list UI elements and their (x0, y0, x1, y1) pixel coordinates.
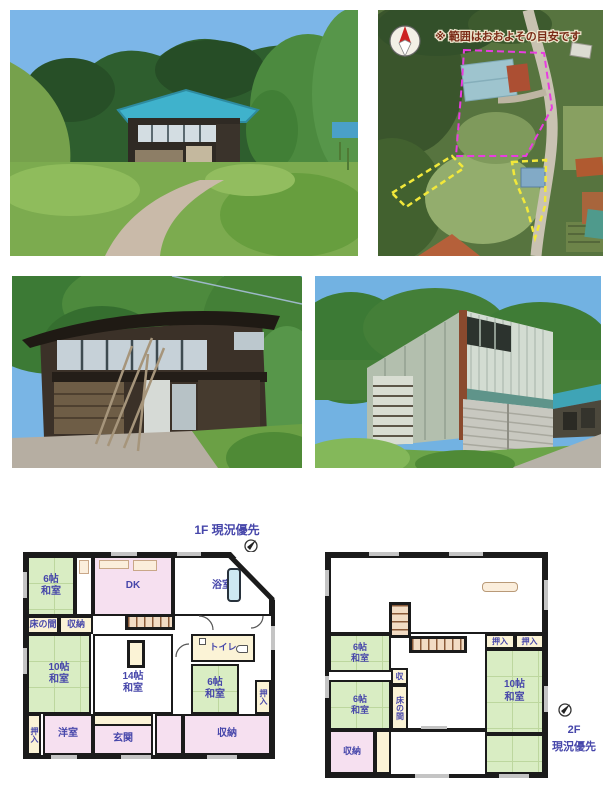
floorplan-1f: 6帖 和室 DK 浴室 床の間 収納 10帖 和室 14帖 和室 トイレ (23, 552, 275, 759)
closet-box-1f (127, 640, 145, 668)
room-1f-entrance: 玄関 (93, 724, 153, 755)
room-1f-washitsu6-e: 6帖 和室 (191, 664, 239, 714)
room-1f-toilet: トイレ (191, 634, 255, 662)
photo-warehouse (315, 276, 601, 468)
map-blue-shed (521, 168, 545, 187)
stairs-2f-upper (389, 602, 411, 638)
room-1f-passage-nw (75, 556, 93, 616)
floor1-title: 1F 現況優先 (172, 521, 282, 539)
sink-icon (199, 638, 206, 645)
room-2f-storage: 収納 (329, 730, 375, 774)
room-2f-storage-small: 収 (391, 668, 408, 685)
compass-icon (390, 26, 420, 56)
room-2f-oshiire-a: 押入 (485, 634, 515, 649)
room-2f-washitsu6-s: 6帖 和室 (329, 680, 391, 730)
room-2f-open-room (329, 556, 544, 634)
room-1f-oshiire-e: 押入 (255, 680, 271, 714)
kitchen-counter (99, 560, 129, 569)
bathtub (227, 568, 241, 602)
photo1-distant-blue-roof (332, 122, 358, 138)
room-2f-cream-strip (375, 730, 391, 774)
wall-2f-mid (391, 728, 487, 732)
photo-house-closeup (12, 276, 302, 468)
north-indicator-icon-2f (557, 702, 573, 718)
room-2f-washitsu6-n: 6帖 和室 (329, 634, 391, 672)
stairs-1f (125, 614, 175, 630)
room-1f-tokonoma: 床の間 (27, 616, 59, 634)
room-1f-washitsu6-nw: 6帖 和室 (27, 556, 75, 616)
floorplan-2f: 6帖 和室 押入 押入 10帖 和室 収 6帖 和室 床の間 収納 (325, 552, 548, 778)
stairs-2f-run (409, 636, 467, 653)
room-2f-tatami-s (485, 734, 544, 774)
room-1f-washitsu10: 10帖 和室 (27, 634, 91, 714)
aerial-map: ※ 範囲はおおよその目安です (378, 10, 603, 256)
room-1f-entry-side (155, 714, 183, 755)
toilet-icon (236, 645, 248, 653)
kitchen-sink (133, 560, 157, 571)
room-1f-bath: 浴室 (173, 556, 271, 616)
room-2f-oshiire-b: 押入 (515, 634, 544, 649)
room-2f-washitsu10: 10帖 和室 (485, 649, 544, 734)
furniture-counter (482, 582, 518, 592)
flyer-page: ※ 範囲はおおよその目安です (0, 0, 607, 800)
room-1f-western: 洋室 (43, 714, 93, 755)
floor2-title: 2F 現況優先 (543, 722, 605, 755)
room-1f-dk: DK (93, 556, 173, 616)
room-1f-oshiire-w: 押入 (27, 714, 41, 755)
room-1f-storage-strip: 収納 (59, 616, 93, 634)
room-1f-storage-big: 収納 (183, 714, 271, 755)
room-2f-tokonoma: 床の間 (391, 685, 408, 730)
map-note: ※ 範囲はおおよその目安です (435, 29, 581, 43)
photo-house-approach (10, 10, 358, 256)
